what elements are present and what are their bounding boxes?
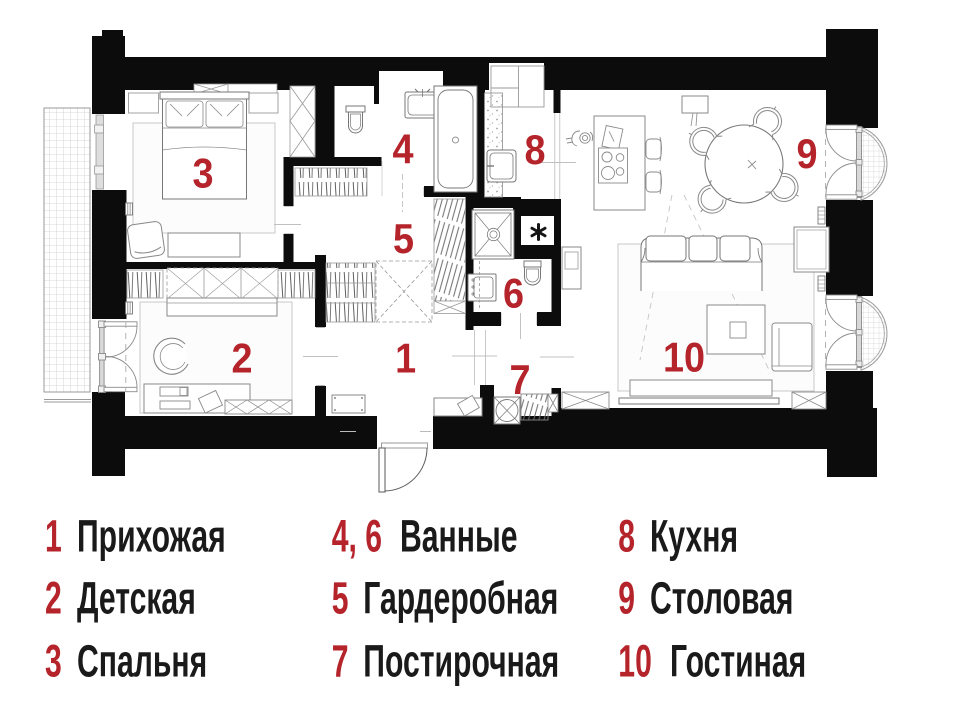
svg-text:7: 7: [332, 637, 349, 688]
svg-text:8: 8: [618, 512, 635, 563]
svg-text:Спальня: Спальня: [77, 637, 207, 688]
svg-text:Прихожая: Прихожая: [77, 512, 226, 563]
svg-text:7: 7: [509, 357, 530, 403]
svg-text:9: 9: [796, 131, 817, 177]
svg-text:2: 2: [45, 574, 62, 625]
svg-text:1: 1: [395, 336, 416, 382]
svg-text:2: 2: [231, 336, 252, 382]
svg-text:Постирочная: Постирочная: [363, 637, 559, 688]
svg-text:6: 6: [503, 271, 524, 317]
svg-text:Столовая: Столовая: [650, 574, 793, 625]
svg-text:Детская: Детская: [77, 574, 196, 625]
svg-text:Ванные: Ванные: [400, 512, 517, 563]
svg-text:5: 5: [332, 574, 349, 625]
svg-text:5: 5: [393, 216, 414, 262]
svg-text:4: 4: [392, 127, 413, 173]
svg-text:Гардеробная: Гардеробная: [363, 574, 558, 625]
svg-text:8: 8: [524, 127, 545, 173]
svg-text:Кухня: Кухня: [650, 512, 738, 563]
svg-text:1: 1: [45, 512, 62, 563]
svg-text:3: 3: [192, 151, 213, 197]
svg-text:3: 3: [45, 637, 62, 688]
svg-text:10: 10: [663, 335, 705, 381]
svg-text:4, 6: 4, 6: [332, 512, 382, 563]
svg-text:Гостиная: Гостиная: [670, 637, 806, 688]
svg-text:9: 9: [618, 574, 635, 625]
svg-text:10: 10: [618, 637, 652, 688]
